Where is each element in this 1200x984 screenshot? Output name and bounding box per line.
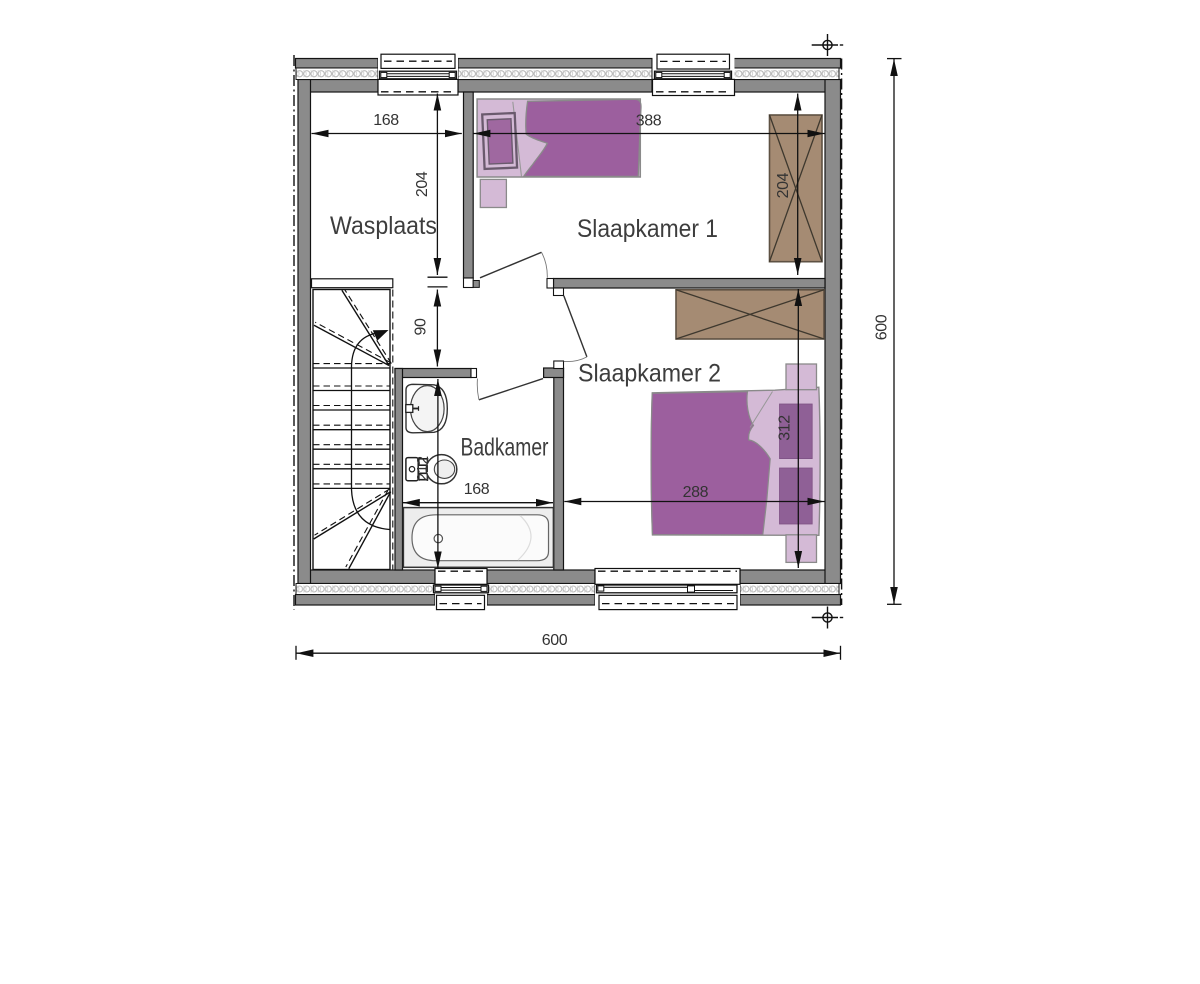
svg-text:168: 168 [373, 112, 399, 129]
svg-text:312: 312 [776, 415, 793, 441]
svg-text:90: 90 [413, 318, 430, 335]
svg-text:600: 600 [874, 314, 891, 340]
svg-text:212: 212 [415, 456, 432, 482]
svg-text:Wasplaats: Wasplaats [330, 212, 437, 240]
svg-text:600: 600 [542, 632, 568, 649]
svg-text:168: 168 [464, 481, 490, 498]
svg-text:388: 388 [636, 113, 662, 130]
svg-text:Badkamer: Badkamer [461, 434, 549, 462]
svg-text:Slaapkamer 2: Slaapkamer 2 [578, 360, 721, 388]
svg-text:288: 288 [683, 484, 709, 501]
svg-text:Slaapkamer 1: Slaapkamer 1 [577, 215, 718, 243]
svg-text:204: 204 [414, 171, 431, 197]
svg-text:204: 204 [775, 172, 792, 198]
